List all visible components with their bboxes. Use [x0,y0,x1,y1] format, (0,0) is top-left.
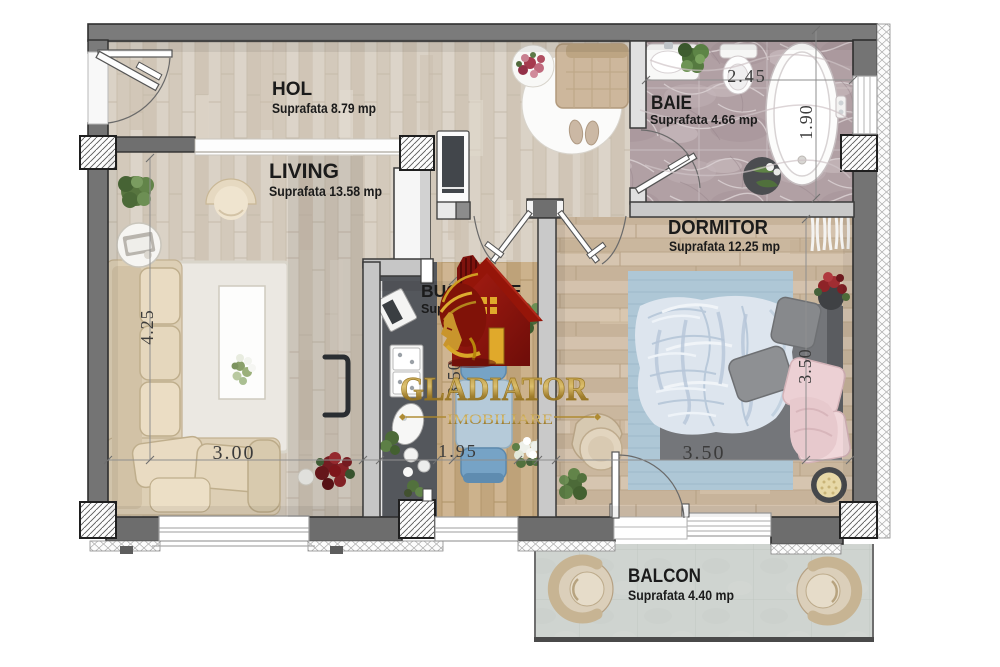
svg-text:IMOBILIARE: IMOBILIARE [447,412,553,428]
svg-text:Suprafata 13.58 mp: Suprafata 13.58 mp [269,184,382,199]
svg-text:3.00: 3.00 [213,442,256,464]
svg-text:4.25: 4.25 [137,309,157,345]
svg-text:2.45: 2.45 [727,66,767,86]
svg-text:BALCON: BALCON [628,566,701,587]
svg-text:1.95: 1.95 [438,441,478,461]
svg-text:BAIE: BAIE [651,93,692,114]
svg-text:GLADIATOR: GLADIATOR [400,371,588,408]
svg-text:Suprafata 4.66 mp: Suprafata 4.66 mp [650,113,758,127]
svg-text:DORMITOR: DORMITOR [668,216,768,239]
svg-text:3.50: 3.50 [683,442,726,464]
svg-text:Suprafata 12.25 mp: Suprafata 12.25 mp [669,239,780,254]
svg-text:Suprafata 4.40 mp: Suprafata 4.40 mp [628,588,734,603]
svg-text:Suprafata 8.79 mp: Suprafata 8.79 mp [272,101,376,116]
svg-text:HOL: HOL [272,79,313,100]
svg-text:LIVING: LIVING [269,160,339,183]
svg-text:3.50: 3.50 [795,348,815,384]
svg-text:1.90: 1.90 [796,104,816,140]
